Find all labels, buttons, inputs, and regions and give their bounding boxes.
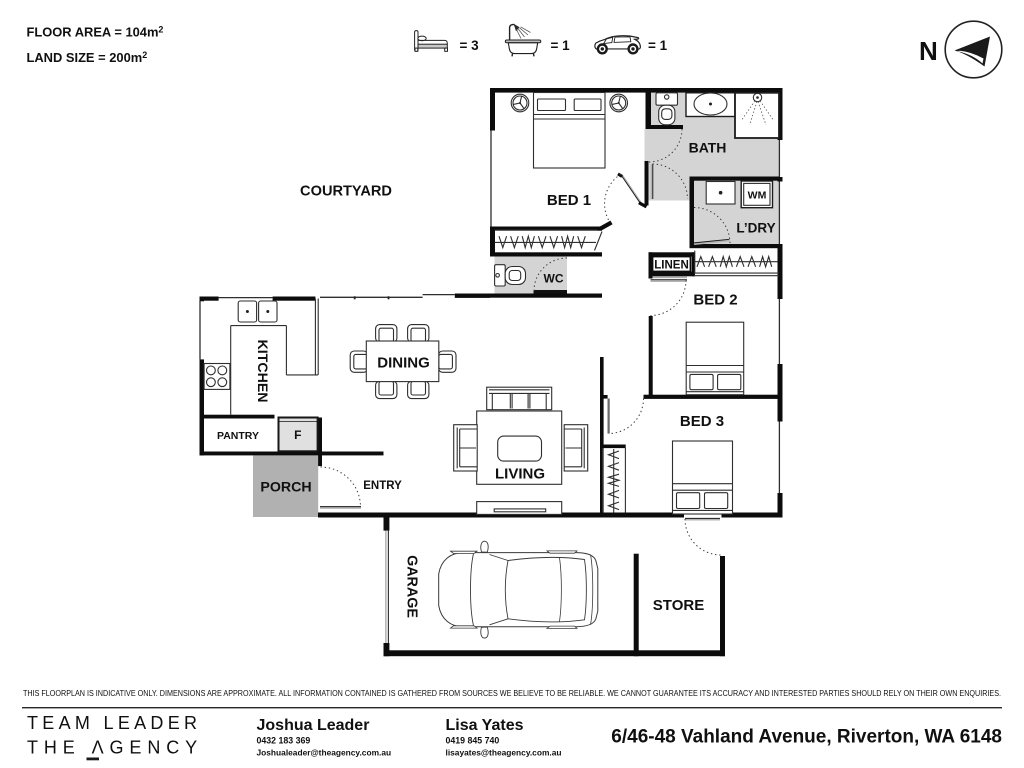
svg-text:= 3: = 3 — [460, 38, 480, 53]
svg-text:THE ΛGENCY: THE ΛGENCY — [27, 738, 203, 758]
svg-text:PANTRY: PANTRY — [217, 430, 259, 442]
svg-text:WC: WC — [544, 272, 564, 286]
svg-text:PORCH: PORCH — [260, 480, 311, 496]
svg-text:BED 1: BED 1 — [547, 192, 591, 209]
svg-text:F: F — [294, 428, 301, 442]
svg-text:0432 183 369: 0432 183 369 — [257, 736, 311, 746]
svg-text:Joshua Leader: Joshua Leader — [257, 717, 370, 734]
svg-text:Joshualeader@theagency.com.au: Joshualeader@theagency.com.au — [257, 748, 392, 758]
svg-text:BED 2: BED 2 — [693, 292, 737, 309]
svg-text:L’DRY: L’DRY — [736, 221, 775, 236]
svg-text:0419 845 740: 0419 845 740 — [446, 736, 500, 746]
svg-text:LIVING: LIVING — [495, 465, 545, 482]
svg-text:lisayates@theagency.com.au: lisayates@theagency.com.au — [446, 748, 562, 758]
svg-text:GARAGE: GARAGE — [404, 555, 420, 618]
svg-text:THIS FLOORPLAN IS INDICATIVE O: THIS FLOORPLAN IS INDICATIVE ONLY. DIMEN… — [23, 689, 1001, 698]
svg-text:TEAM LEADER: TEAM LEADER — [27, 713, 201, 733]
svg-text:STORE: STORE — [653, 597, 704, 614]
svg-text:LINEN: LINEN — [654, 260, 689, 272]
svg-text:WM: WM — [748, 189, 767, 201]
svg-text:6/46-48 Vahland Avenue, Rivert: 6/46-48 Vahland Avenue, Riverton, WA 614… — [611, 727, 1002, 748]
svg-text:DINING: DINING — [377, 354, 430, 371]
svg-text:BATH: BATH — [689, 140, 727, 156]
svg-text:LAND SIZE = 200m2: LAND SIZE = 200m2 — [27, 50, 148, 65]
svg-text:= 1: = 1 — [551, 38, 571, 53]
svg-text:= 1: = 1 — [648, 38, 668, 53]
svg-text:N: N — [919, 36, 938, 66]
svg-text:Lisa Yates: Lisa Yates — [446, 717, 524, 734]
svg-text:COURTYARD: COURTYARD — [300, 184, 392, 200]
svg-text:FLOOR AREA = 104m2: FLOOR AREA = 104m2 — [27, 25, 164, 40]
svg-text:BED 3: BED 3 — [680, 413, 724, 430]
svg-text:ENTRY: ENTRY — [363, 480, 402, 492]
svg-text:KITCHEN: KITCHEN — [254, 339, 270, 402]
